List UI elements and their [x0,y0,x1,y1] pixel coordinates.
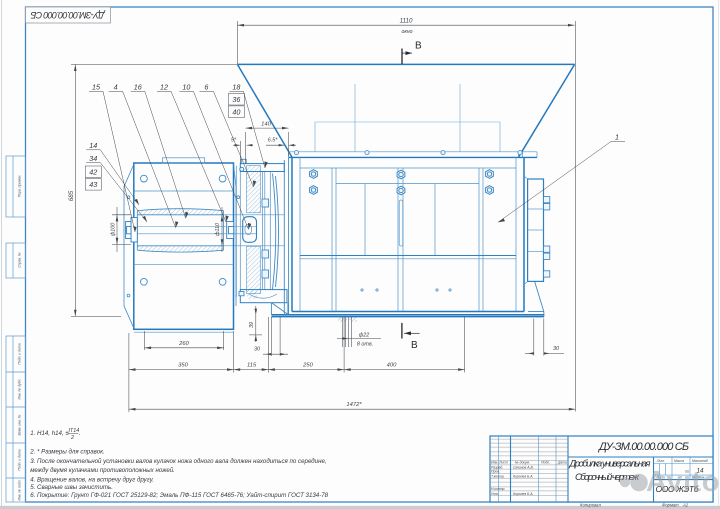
svg-text:между двумя кулачками противоп: между двумя кулачками противоположных но… [30,467,175,474]
svg-text:Справ. №: Справ. № [18,252,22,268]
svg-text:2. * Размеры для справок.: 2. * Размеры для справок. [29,448,105,455]
svg-text:1472*: 1472* [346,402,362,408]
svg-text:Королев Б.А.: Королев Б.А. [513,492,534,496]
svg-text:В: В [411,340,418,351]
svg-text:Лит.: Лит. [656,459,665,463]
svg-text:ф100: ф100 [111,223,117,237]
svg-text:14: 14 [89,141,97,150]
svg-text:Перв. примен.: Перв. примен. [18,175,22,198]
svg-text:Масса: Масса [674,459,684,463]
svg-text:Т.контр.: Т.контр. [491,474,505,478]
svg-text:Подп. и дата: Подп. и дата [18,449,22,470]
svg-text:Сачинов А.В.: Сачинов А.В. [513,465,534,469]
svg-text:10: 10 [182,83,190,92]
svg-text:260: 260 [178,341,189,347]
svg-text:ф110: ф110 [215,223,221,236]
svg-text:Королев Б.А.: Королев Б.А. [513,474,534,478]
svg-text:Утв.: Утв. [491,492,499,496]
svg-text:30: 30 [553,346,559,352]
svg-text:350: 350 [178,363,188,369]
svg-text:3. После окончательной установ: 3. После окончательной установки валов к… [30,458,326,465]
svg-text:30: 30 [254,347,260,353]
svg-text:1: 1 [615,133,619,142]
svg-text:16: 16 [134,83,142,92]
svg-text:ДУ-ЗМ.00.00.000 СБ: ДУ-ЗМ.00.00.000 СБ [597,441,689,453]
svg-text:Масштаб: Масштаб [692,459,708,463]
svg-text:4: 4 [114,83,118,92]
svg-text:15: 15 [92,83,101,92]
svg-text:1110: 1110 [400,17,413,24]
svg-text:Подп. и дата: Подп. и дата [18,343,22,364]
svg-text:36: 36 [232,95,240,104]
svg-text:6: 6 [204,83,208,92]
svg-text:Копировал: Копировал [580,502,601,507]
svg-text:39: 39 [249,322,255,328]
svg-text:IT14: IT14 [69,428,80,434]
svg-text:Инв. № дубл.: Инв. № дубл. [18,379,22,400]
svg-text:8 отв.: 8 отв. [357,342,373,348]
svg-text:40: 40 [232,107,240,116]
svg-text:1. Н14, h14, ±: 1. Н14, h14, ± [30,430,69,437]
svg-text:Пров.: Пров. [491,470,500,474]
svg-text:Дробилка универсальная: Дробилка универсальная [569,459,651,470]
svg-text:окно: окно [401,29,412,35]
svg-text:43: 43 [89,180,97,189]
svg-text:Дата: Дата [557,461,567,465]
svg-text:42: 42 [89,167,97,176]
svg-text:34: 34 [89,154,97,163]
svg-text:Взам. инв. №: Взам. инв. № [18,414,22,435]
svg-text:6. Покрытие: Грунт ГФ-021 ГОС: 6. Покрытие: Грунт ГФ-021 ГОСТ 25129-82;… [30,492,328,499]
svg-text:Формат: Формат [662,502,679,507]
svg-text:18: 18 [232,83,240,92]
svg-text:ДУ-ЗМ.00.00.000 СБ: ДУ-ЗМ.00.00.000 СБ [30,10,105,20]
svg-text:5. Сварные швы зачистить.: 5. Сварные швы зачистить. [30,484,113,491]
svg-text:А2: А2 [682,502,689,507]
svg-text:685: 685 [68,190,75,201]
svg-text:250: 250 [302,363,313,369]
svg-text:Изм. Лист: Изм. Лист [491,461,508,465]
svg-text:№ докум.: № докум. [515,461,530,465]
svg-text:Подп.: Подп. [541,461,550,465]
svg-text:400: 400 [387,363,397,369]
svg-text:.: . [79,430,81,437]
svg-text:2: 2 [70,435,74,441]
svg-text:115: 115 [247,363,257,369]
svg-text:Инв. № подл.: Инв. № подл. [18,479,22,500]
svg-text:Н.контр.: Н.контр. [491,487,505,491]
svg-text:Avito: Avito [646,466,720,498]
svg-text:4. Вращение валов, на встречу: 4. Вращение валов, на встречу друг другу… [30,476,154,483]
svg-text:В: В [415,41,422,52]
svg-text:12: 12 [160,83,168,92]
svg-text:ф22: ф22 [359,332,370,338]
svg-text:140: 140 [261,121,271,127]
svg-text:6.5*: 6.5* [268,138,278,144]
